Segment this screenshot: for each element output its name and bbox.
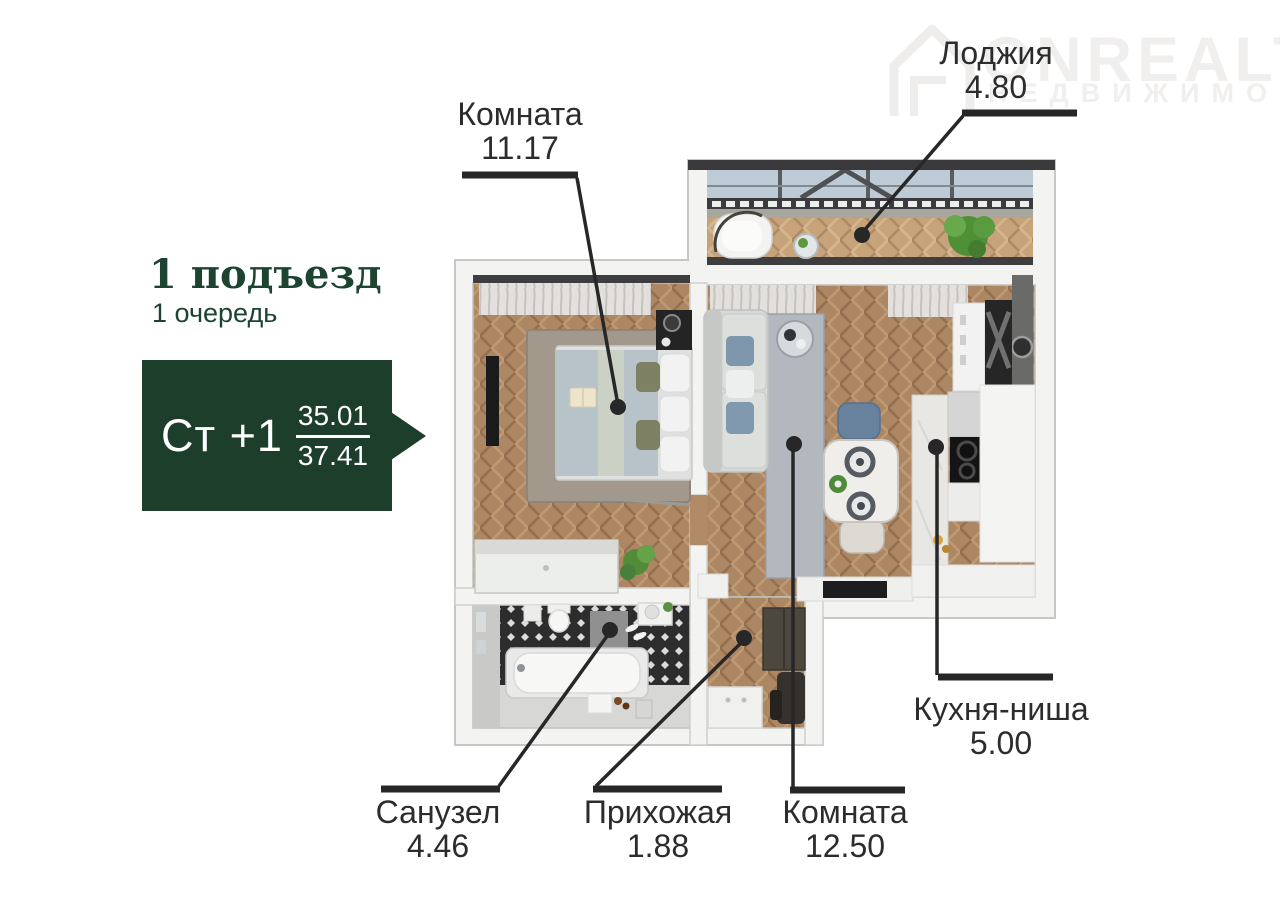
room-name: Лоджия <box>939 36 1052 70</box>
bathtub <box>506 648 648 698</box>
room-area: 1.88 <box>584 829 732 863</box>
room-area: 4.46 <box>376 829 501 863</box>
room-area: 5.00 <box>913 726 1088 760</box>
room-area: 4.80 <box>939 70 1052 104</box>
room-name: Кухня-ниша <box>913 692 1088 726</box>
floor-plan-page: ONREALT НЕДВИЖИМОСТЬ 1 подъезд 1 очередь… <box>0 0 1280 910</box>
room-area: 11.17 <box>457 131 582 165</box>
label-kitchen-niche: Кухня-ниша 5.00 <box>913 692 1088 760</box>
loggia-vent-slats <box>712 201 1029 207</box>
nightstand <box>656 310 692 350</box>
kitchen-counter-marble <box>912 395 948 590</box>
hallway-cabinet <box>708 687 762 728</box>
wall-mirror <box>1012 337 1032 357</box>
dresser <box>475 540 618 593</box>
tv-bedroom <box>486 356 499 446</box>
room-name: Санузел <box>376 795 501 829</box>
room-name: Комната <box>782 795 907 829</box>
label-room-2: Комната 12.50 <box>782 795 907 863</box>
room-area: 12.50 <box>782 829 907 863</box>
loggia-table <box>794 234 818 258</box>
loggia-chair <box>714 212 772 258</box>
bathroom-sink <box>638 602 673 625</box>
room-name: Прихожая <box>584 795 732 829</box>
kitchen-tall-unit <box>980 385 1035 562</box>
label-hallway: Прихожая 1.88 <box>584 795 732 863</box>
kitchen-cabinet-column <box>953 303 985 391</box>
bedroom-door-opening <box>690 495 707 545</box>
label-bathroom: Санузел 4.46 <box>376 795 501 863</box>
coffee-table <box>777 321 813 357</box>
label-room-1: Комната 11.17 <box>457 97 582 165</box>
bed <box>556 346 692 480</box>
sofa <box>704 310 768 472</box>
floor-plan-graphic <box>0 0 1280 910</box>
label-loggia: Лоджия 4.80 <box>939 36 1052 104</box>
room-name: Комната <box>457 97 582 131</box>
